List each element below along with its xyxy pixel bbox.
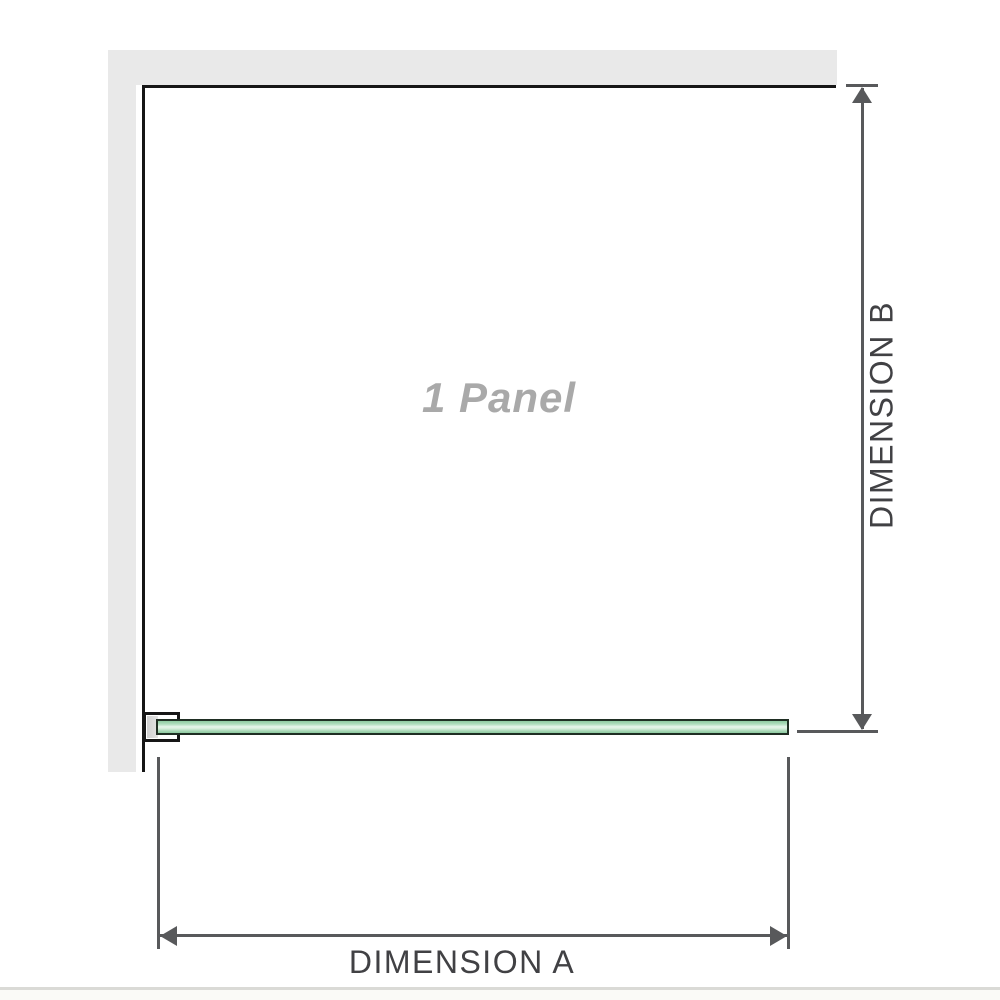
dimension-b-arrow-up-icon — [852, 87, 872, 103]
panel-outline-top — [142, 85, 836, 88]
wall-top — [108, 50, 837, 85]
panel-count-label: 1 Panel — [422, 374, 576, 422]
dimension-a-right-extension-line — [787, 757, 790, 949]
dimension-b-arrow-down-icon — [852, 714, 872, 730]
dimension-b-label: DIMENSION B — [864, 301, 901, 529]
dimension-a-label: DIMENSION A — [349, 944, 575, 981]
panel-outline-left — [142, 85, 145, 772]
dimension-a-left-extension-line — [157, 757, 160, 949]
dimension-a-line — [160, 934, 788, 937]
wall-left — [108, 50, 136, 772]
glass-panel — [156, 719, 789, 735]
diagram-canvas: 1 Panel DIMENSION B DIMENSION A — [0, 0, 1000, 1000]
dimension-a-arrow-left-icon — [160, 926, 177, 946]
dimension-b-bottom-tick — [797, 730, 878, 733]
page-footer-strip — [0, 990, 1000, 1000]
dimension-a-arrow-right-icon — [770, 926, 787, 946]
